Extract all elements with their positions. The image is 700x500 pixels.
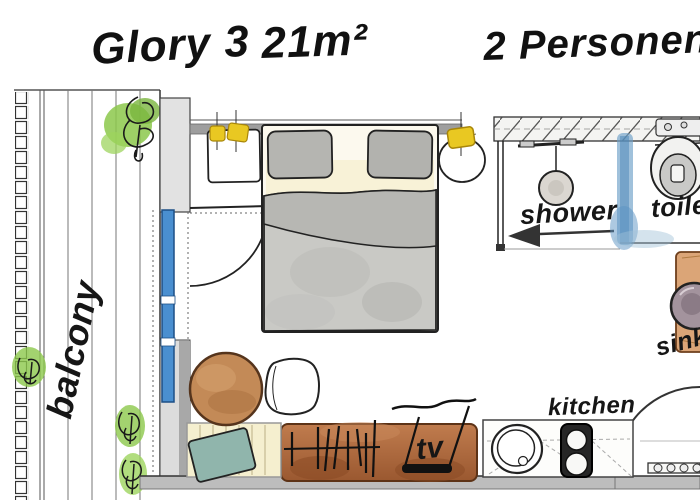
bench <box>187 423 281 483</box>
header-titles: Glory 3 21m² 2 Personen <box>90 15 700 74</box>
drain <box>519 457 528 466</box>
hinge <box>693 464 700 472</box>
dining-table <box>190 353 262 425</box>
plant-icon <box>12 347 46 387</box>
balcony-railing <box>15 92 29 500</box>
kitchen-area: kitchen <box>483 391 636 477</box>
sink-label: sink <box>653 322 700 362</box>
hinge <box>667 464 675 472</box>
nightstand-round <box>439 112 485 182</box>
sideboard: tv <box>281 399 477 482</box>
hinge <box>680 464 688 472</box>
balcony-area: balcony <box>12 90 160 500</box>
door-swing-icon <box>190 207 268 286</box>
left-wall-top-block <box>160 98 190 212</box>
sliding-glass-door <box>162 210 174 402</box>
occupancy-title: 2 Personen <box>482 17 700 69</box>
wood-shading <box>320 422 400 442</box>
table-highlight <box>196 364 236 392</box>
toilet-icon <box>651 119 700 199</box>
duvet-shading <box>265 294 335 330</box>
pillow <box>368 130 433 178</box>
toilet-label: toilet <box>650 189 700 224</box>
pillow <box>268 130 333 178</box>
shower-label: shower <box>519 195 619 230</box>
plant-icon <box>101 97 160 161</box>
door-frame-break2 <box>161 338 175 346</box>
nightstand-square <box>208 110 261 182</box>
double-bed <box>262 125 438 332</box>
plant-icon <box>115 405 145 447</box>
table-shading <box>208 390 256 414</box>
kitchen-label: kitchen <box>547 391 635 421</box>
room-name-title: Glory 3 <box>90 17 251 74</box>
duvet-shading <box>362 282 422 322</box>
wall-foot <box>496 244 505 251</box>
lamp-icon <box>227 123 249 143</box>
vanity-sink: sink <box>653 252 700 362</box>
lamp-icon <box>447 126 475 148</box>
floor-plan-canvas: Glory 3 21m² 2 Personen <box>0 0 700 500</box>
door-frame-break <box>161 296 175 304</box>
chair <box>266 359 319 415</box>
duvet-shading <box>290 247 370 297</box>
wood-shading <box>290 456 350 480</box>
stove-icon <box>561 424 592 477</box>
hinge <box>654 464 662 472</box>
tv-label: tv <box>414 430 447 466</box>
lamp-icon <box>210 126 225 141</box>
door-leaf <box>190 206 268 208</box>
shower-head-icon <box>518 139 584 205</box>
balcony-label: balcony <box>38 275 107 421</box>
room-size-title: 21m² <box>260 15 370 68</box>
bathroom-area: shower toilet <box>494 117 700 251</box>
